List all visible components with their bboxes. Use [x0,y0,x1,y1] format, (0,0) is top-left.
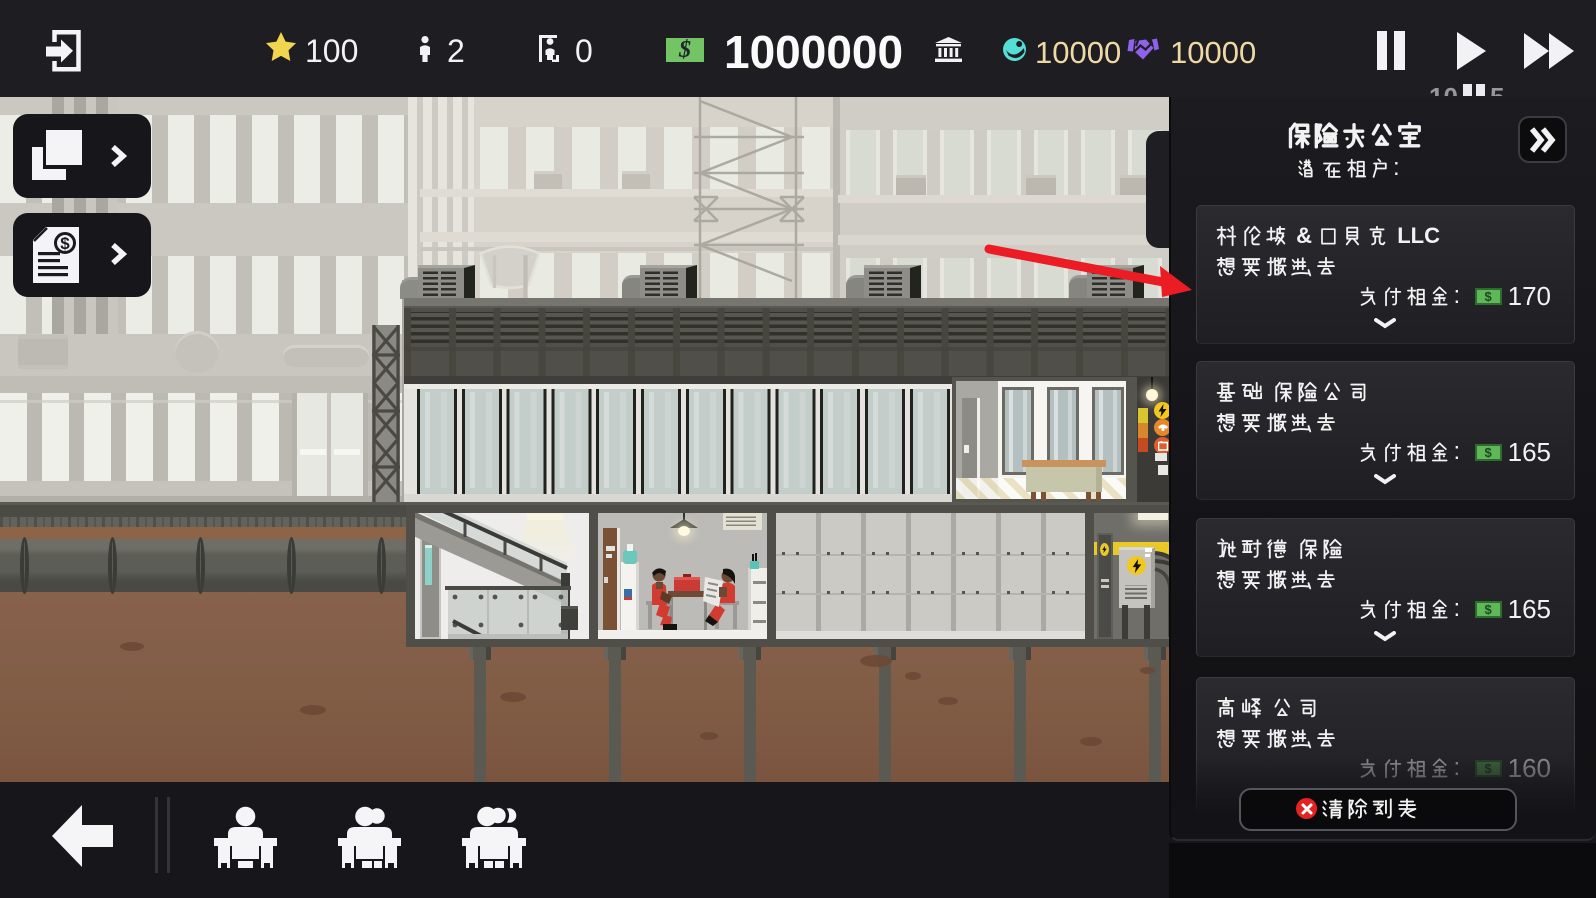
svg-text:$: $ [60,234,70,253]
